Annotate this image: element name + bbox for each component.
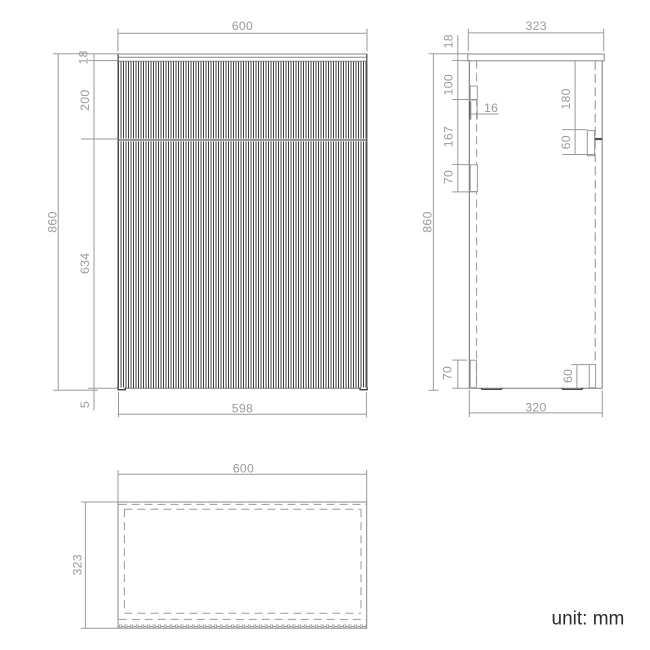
svg-text:70: 70 <box>441 170 455 184</box>
svg-text:860: 860 <box>46 211 60 232</box>
svg-text:16: 16 <box>484 101 498 115</box>
svg-text:320: 320 <box>525 400 546 414</box>
svg-text:860: 860 <box>420 211 434 232</box>
svg-text:323: 323 <box>70 554 84 575</box>
svg-text:600: 600 <box>232 19 253 33</box>
svg-text:5: 5 <box>78 401 92 408</box>
svg-text:180: 180 <box>559 88 573 109</box>
svg-text:60: 60 <box>559 135 573 149</box>
svg-text:18: 18 <box>441 34 455 48</box>
svg-text:598: 598 <box>232 402 253 416</box>
svg-text:unit: mm: unit: mm <box>552 609 625 630</box>
svg-text:60: 60 <box>561 369 575 383</box>
svg-text:634: 634 <box>78 253 92 274</box>
svg-text:100: 100 <box>441 74 455 95</box>
svg-text:200: 200 <box>78 89 92 110</box>
svg-text:600: 600 <box>233 462 254 476</box>
svg-text:18: 18 <box>77 50 91 64</box>
svg-text:70: 70 <box>441 366 455 380</box>
svg-text:323: 323 <box>525 19 546 33</box>
svg-text:167: 167 <box>441 126 455 147</box>
